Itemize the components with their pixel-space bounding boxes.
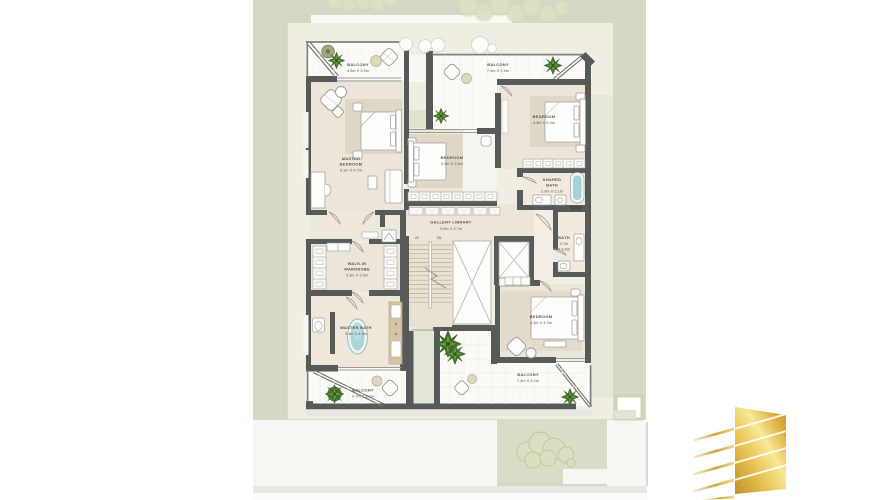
svg-text:2.7m: 2.7m [560, 242, 569, 246]
svg-text:9.0m X 3.7m: 9.0m X 3.7m [440, 227, 462, 231]
svg-text:BALCONY: BALCONY [352, 388, 374, 393]
svg-text:BEDROOM: BEDROOM [533, 114, 556, 119]
svg-text:BALCONY: BALCONY [347, 62, 369, 67]
svg-text:GALLERY LIBRARY: GALLERY LIBRARY [430, 220, 471, 225]
svg-text:BEDROOM: BEDROOM [530, 314, 553, 319]
svg-text:BALCONY: BALCONY [517, 372, 539, 377]
svg-text:BEDROOM: BEDROOM [340, 162, 363, 167]
svg-text:BALCONY: BALCONY [487, 62, 509, 67]
svg-text:4.9m X 4.3m: 4.9m X 4.3m [530, 321, 552, 325]
svg-text:SHARED: SHARED [543, 177, 561, 182]
svg-text:5.1m X 3.5m: 5.1m X 3.5m [441, 162, 463, 166]
svg-text:UP: UP [415, 236, 420, 240]
svg-text:DN: DN [437, 236, 442, 240]
svg-text:BATH: BATH [558, 235, 570, 240]
svg-text:4.9m X 5.3m: 4.9m X 5.3m [533, 121, 555, 125]
svg-text:4.5m X 3.9m: 4.5m X 3.9m [347, 69, 369, 73]
svg-text:4.7m X 3.4m: 4.7m X 3.4m [352, 395, 374, 399]
svg-text:WALK-IN: WALK-IN [348, 261, 367, 266]
svg-text:WARDROBE: WARDROBE [344, 267, 370, 272]
svg-text:BATH: BATH [546, 183, 558, 188]
svg-text:7.4m X 4.2m: 7.4m X 4.2m [517, 379, 539, 383]
svg-text:3.0m X 2.1m: 3.0m X 2.1m [541, 190, 563, 194]
svg-text:7.4m X 3.9m: 7.4m X 3.9m [487, 69, 509, 73]
svg-text:X 3.6m: X 3.6m [558, 248, 570, 252]
svg-text:5.1m X 6.7m: 5.1m X 6.7m [340, 169, 362, 173]
svg-text:MASTER: MASTER [342, 156, 360, 161]
svg-text:3.3m X 3.5m: 3.3m X 3.5m [346, 274, 368, 278]
svg-text:MASTER BATH: MASTER BATH [340, 325, 372, 330]
svg-text:BEDROOM: BEDROOM [441, 155, 464, 160]
svg-text:5.4m X 4.6m: 5.4m X 4.6m [345, 332, 367, 336]
